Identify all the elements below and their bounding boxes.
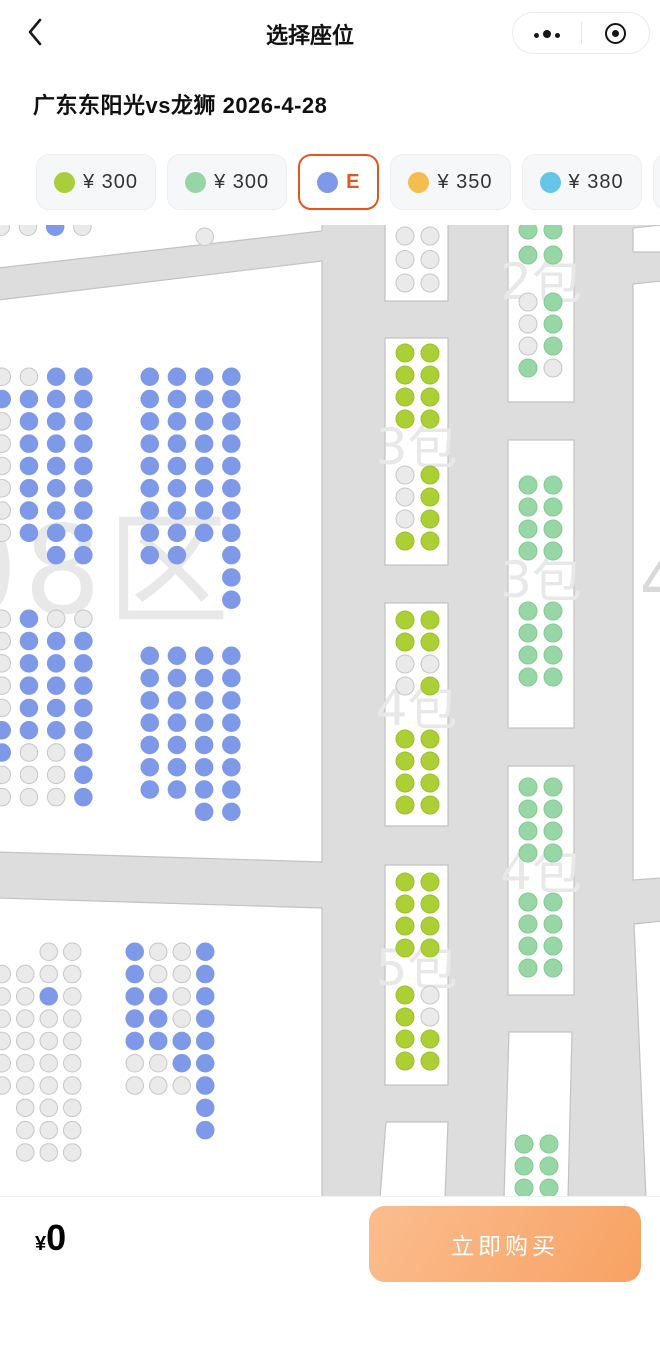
- seat-available[interactable]: [126, 988, 144, 1006]
- seat-available[interactable]: [519, 893, 537, 911]
- seat-available[interactable]: [197, 943, 215, 961]
- seat-available[interactable]: [519, 225, 537, 239]
- seat-available[interactable]: [540, 1135, 558, 1153]
- seat-available[interactable]: [47, 722, 65, 740]
- seat-available[interactable]: [544, 337, 562, 355]
- seat-unavailable: [20, 744, 38, 762]
- seat-available[interactable]: [519, 844, 537, 862]
- seat-available[interactable]: [141, 435, 159, 453]
- seat-available[interactable]: [396, 730, 414, 748]
- seat-available[interactable]: [519, 915, 537, 933]
- seat-available[interactable]: [75, 413, 93, 431]
- event-title: 广东东阳光vs龙狮 2026-4-28: [33, 88, 327, 120]
- seat-available[interactable]: [544, 476, 562, 494]
- seat-unavailable: [421, 227, 439, 245]
- seat-available[interactable]: [223, 803, 241, 821]
- seat-unavailable: [396, 251, 414, 269]
- seat-unavailable: [75, 610, 93, 628]
- seat-available[interactable]: [396, 388, 414, 406]
- seat-available[interactable]: [75, 480, 93, 498]
- seat-available[interactable]: [223, 669, 241, 687]
- seat-available[interactable]: [47, 502, 65, 520]
- seat-available[interactable]: [168, 457, 186, 475]
- seat-unavailable: [40, 1121, 58, 1139]
- seat-available[interactable]: [47, 546, 65, 564]
- seat-available[interactable]: [223, 480, 241, 498]
- seat-available[interactable]: [519, 822, 537, 840]
- seat-available[interactable]: [197, 1077, 215, 1095]
- seat-available[interactable]: [195, 714, 213, 732]
- seat-unavailable: [64, 965, 82, 983]
- seat-available[interactable]: [195, 390, 213, 408]
- seat-available[interactable]: [168, 524, 186, 542]
- seat-available[interactable]: [75, 788, 93, 806]
- seat-available[interactable]: [20, 610, 38, 628]
- seat-unavailable: [519, 337, 537, 355]
- seat-available[interactable]: [544, 542, 562, 560]
- seat-available[interactable]: [75, 632, 93, 650]
- seat-map[interactable]: 08区43包4包5包2包3包4包: [0, 225, 660, 1196]
- tier-dot-icon: [54, 172, 75, 193]
- seat-available[interactable]: [515, 1157, 533, 1175]
- seat-available[interactable]: [519, 800, 537, 818]
- seat-available[interactable]: [421, 633, 439, 651]
- seat-available[interactable]: [544, 844, 562, 862]
- seat-available[interactable]: [421, 752, 439, 770]
- tier-chip-5[interactable]: [653, 154, 660, 210]
- tier-chip-4[interactable]: ¥ 380: [522, 154, 642, 210]
- seat-available[interactable]: [197, 965, 215, 983]
- seat-available[interactable]: [396, 774, 414, 792]
- section-watermark: 4: [640, 545, 660, 619]
- seat-available[interactable]: [519, 520, 537, 538]
- seat-available[interactable]: [75, 435, 93, 453]
- seat-available[interactable]: [141, 390, 159, 408]
- seat-available[interactable]: [141, 546, 159, 564]
- seat-available[interactable]: [173, 1032, 191, 1050]
- seat-available[interactable]: [168, 413, 186, 431]
- section-watermark: 4包: [500, 843, 582, 901]
- seat-available[interactable]: [47, 677, 65, 695]
- seat-available[interactable]: [195, 413, 213, 431]
- seat-available[interactable]: [515, 1135, 533, 1153]
- seat-available[interactable]: [519, 542, 537, 560]
- seat-available[interactable]: [544, 624, 562, 642]
- seat-available[interactable]: [195, 524, 213, 542]
- navbar: 选择座位: [0, 0, 660, 64]
- seat-unavailable: [150, 965, 168, 983]
- seat-available[interactable]: [168, 546, 186, 564]
- seat-available[interactable]: [519, 359, 537, 377]
- miniprogram-capsule: [512, 12, 650, 54]
- seat-available[interactable]: [421, 388, 439, 406]
- seat-available[interactable]: [75, 457, 93, 475]
- seat-available[interactable]: [396, 1030, 414, 1048]
- seat-available[interactable]: [126, 1010, 144, 1028]
- seat-available[interactable]: [20, 722, 38, 740]
- seat-unavailable: [40, 1055, 58, 1073]
- seat-available[interactable]: [421, 366, 439, 384]
- tier-chip-label: ¥ 350: [437, 171, 492, 194]
- seat-available[interactable]: [223, 457, 241, 475]
- seat-available[interactable]: [223, 524, 241, 542]
- seat-available[interactable]: [195, 759, 213, 777]
- seat-available[interactable]: [195, 736, 213, 754]
- seat-available[interactable]: [519, 778, 537, 796]
- seat-available[interactable]: [544, 293, 562, 311]
- seat-available[interactable]: [20, 655, 38, 673]
- seat-available[interactable]: [396, 344, 414, 362]
- seat-available[interactable]: [75, 677, 93, 695]
- seat-available[interactable]: [141, 692, 159, 710]
- seat-unavailable: [421, 655, 439, 673]
- seat-unavailable: [64, 1032, 82, 1050]
- seat-available[interactable]: [47, 413, 65, 431]
- seat-available[interactable]: [421, 677, 439, 695]
- seat-unavailable: [40, 1032, 58, 1050]
- seat-available[interactable]: [126, 965, 144, 983]
- seat-available[interactable]: [168, 669, 186, 687]
- seat-available[interactable]: [47, 655, 65, 673]
- seat-available[interactable]: [40, 988, 58, 1006]
- seat-available[interactable]: [396, 917, 414, 935]
- seat-available[interactable]: [223, 435, 241, 453]
- seat-available[interactable]: [421, 939, 439, 957]
- seat-available[interactable]: [47, 368, 65, 386]
- map-section-right-edge-top: [633, 225, 660, 252]
- seat-available[interactable]: [47, 435, 65, 453]
- seat-available[interactable]: [141, 647, 159, 665]
- seat-available[interactable]: [141, 524, 159, 542]
- seat-available[interactable]: [421, 344, 439, 362]
- seat-available[interactable]: [421, 774, 439, 792]
- seat-available[interactable]: [195, 368, 213, 386]
- seat-available[interactable]: [421, 917, 439, 935]
- seat-available[interactable]: [421, 1052, 439, 1070]
- seat-available[interactable]: [421, 611, 439, 629]
- close-minimize-button[interactable]: [582, 13, 650, 53]
- seat-available[interactable]: [540, 1157, 558, 1175]
- seat-available[interactable]: [223, 591, 241, 609]
- seat-unavailable: [173, 965, 191, 983]
- seat-available[interactable]: [223, 714, 241, 732]
- seat-available[interactable]: [223, 413, 241, 431]
- seat-available[interactable]: [396, 1052, 414, 1070]
- seat-available[interactable]: [150, 1010, 168, 1028]
- seat-available[interactable]: [544, 246, 562, 264]
- seat-unavailable: [17, 1144, 35, 1162]
- seat-available[interactable]: [396, 1008, 414, 1026]
- seat-available[interactable]: [20, 435, 38, 453]
- seat-unavailable: [173, 943, 191, 961]
- seat-available[interactable]: [150, 988, 168, 1006]
- seat-unavailable: [64, 1144, 82, 1162]
- seat-available[interactable]: [519, 476, 537, 494]
- seat-available[interactable]: [20, 677, 38, 695]
- seat-available[interactable]: [75, 546, 93, 564]
- seat-unavailable: [47, 766, 65, 784]
- seat-available[interactable]: [197, 1010, 215, 1028]
- seat-unavailable: [20, 788, 38, 806]
- seat-unavailable: [40, 943, 58, 961]
- seat-available[interactable]: [519, 246, 537, 264]
- seat-available[interactable]: [544, 602, 562, 620]
- seat-available[interactable]: [519, 937, 537, 955]
- seat-unavailable: [17, 1032, 35, 1050]
- seat-unavailable: [17, 965, 35, 983]
- seat-available[interactable]: [195, 457, 213, 475]
- seat-available[interactable]: [75, 502, 93, 520]
- seat-available[interactable]: [195, 480, 213, 498]
- seat-available[interactable]: [168, 714, 186, 732]
- seat-unavailable: [126, 1055, 144, 1073]
- tier-dot-icon: [540, 172, 561, 193]
- seat-unavailable: [421, 251, 439, 269]
- seat-available[interactable]: [421, 510, 439, 528]
- seat-available[interactable]: [421, 730, 439, 748]
- seat-available[interactable]: [141, 502, 159, 520]
- seat-unavailable: [396, 655, 414, 673]
- seat-unavailable: [17, 1010, 35, 1028]
- seat-available[interactable]: [168, 390, 186, 408]
- seat-available[interactable]: [47, 524, 65, 542]
- seat-unavailable: [396, 488, 414, 506]
- seat-available[interactable]: [223, 647, 241, 665]
- section-watermark: 3包: [500, 551, 582, 609]
- seat-unavailable: [150, 943, 168, 961]
- tier-chip-1[interactable]: ¥ 300: [167, 154, 287, 210]
- seat-available[interactable]: [519, 959, 537, 977]
- seat-unavailable: [519, 315, 537, 333]
- seat-available[interactable]: [141, 781, 159, 799]
- seat-available[interactable]: [141, 413, 159, 431]
- seat-available[interactable]: [47, 632, 65, 650]
- seat-available[interactable]: [197, 1121, 215, 1139]
- seat-available[interactable]: [141, 480, 159, 498]
- seat-available[interactable]: [223, 781, 241, 799]
- seat-unavailable: [40, 1010, 58, 1028]
- seat-available[interactable]: [197, 988, 215, 1006]
- seat-available[interactable]: [544, 915, 562, 933]
- seat-available[interactable]: [20, 480, 38, 498]
- bottom-bar: ¥0 立即购买: [0, 1196, 660, 1349]
- seat-available[interactable]: [47, 390, 65, 408]
- seat-unavailable: [421, 986, 439, 1004]
- seat-available[interactable]: [396, 939, 414, 957]
- seat-available[interactable]: [20, 502, 38, 520]
- seat-available[interactable]: [150, 1032, 168, 1050]
- seat-available[interactable]: [126, 1032, 144, 1050]
- seat-available[interactable]: [421, 895, 439, 913]
- seat-available[interactable]: [195, 803, 213, 821]
- seat-unavailable: [64, 1055, 82, 1073]
- seat-available[interactable]: [20, 632, 38, 650]
- seat-available[interactable]: [396, 633, 414, 651]
- seat-available[interactable]: [544, 225, 562, 239]
- seat-available[interactable]: [168, 368, 186, 386]
- seat-available[interactable]: [75, 766, 93, 784]
- seat-unavailable: [40, 1144, 58, 1162]
- seat-unavailable: [20, 368, 38, 386]
- seat-available[interactable]: [195, 647, 213, 665]
- seat-available[interactable]: [519, 602, 537, 620]
- seat-available[interactable]: [168, 781, 186, 799]
- seat-available[interactable]: [141, 736, 159, 754]
- seat-available[interactable]: [20, 524, 38, 542]
- seat-available[interactable]: [421, 466, 439, 484]
- box-mid-bottom: [380, 1122, 448, 1196]
- seat-available[interactable]: [223, 546, 241, 564]
- seat-available[interactable]: [515, 1179, 533, 1196]
- tier-chip-2[interactable]: E: [298, 154, 379, 210]
- seat-available[interactable]: [47, 699, 65, 717]
- tier-chip-0[interactable]: ¥ 300: [36, 154, 156, 210]
- seat-available[interactable]: [173, 1055, 191, 1073]
- tier-chip-label: ¥ 380: [569, 171, 624, 194]
- seat-available[interactable]: [195, 781, 213, 799]
- seat-available[interactable]: [75, 744, 93, 762]
- seat-available[interactable]: [20, 457, 38, 475]
- seat-available[interactable]: [195, 692, 213, 710]
- section-watermark: 4包: [376, 679, 458, 737]
- seat-available[interactable]: [223, 390, 241, 408]
- seat-available[interactable]: [544, 668, 562, 686]
- seat-available[interactable]: [20, 413, 38, 431]
- more-menu-button[interactable]: [513, 13, 581, 53]
- seat-available[interactable]: [421, 532, 439, 550]
- seat-available[interactable]: [396, 986, 414, 1004]
- seat-available[interactable]: [421, 1030, 439, 1048]
- tier-chip-label: ¥ 300: [83, 171, 138, 194]
- seat-available[interactable]: [168, 692, 186, 710]
- seat-available[interactable]: [126, 943, 144, 961]
- seat-available[interactable]: [47, 457, 65, 475]
- seat-unavailable: [126, 1077, 144, 1095]
- seat-available[interactable]: [75, 699, 93, 717]
- seat-available[interactable]: [519, 498, 537, 516]
- seat-available[interactable]: [544, 498, 562, 516]
- seat-available[interactable]: [168, 480, 186, 498]
- box-right-bottom: [504, 1032, 572, 1196]
- seat-available[interactable]: [168, 647, 186, 665]
- box-right-2bao: [508, 225, 574, 402]
- seat-available[interactable]: [396, 366, 414, 384]
- seat-available[interactable]: [75, 722, 93, 740]
- seat-unavailable: [47, 610, 65, 628]
- price-tier-filter: ¥ 300¥ 300E¥ 350¥ 380: [0, 151, 660, 213]
- seat-available[interactable]: [544, 822, 562, 840]
- seat-map-canvas: 08区43包4包5包2包3包4包: [0, 225, 660, 1196]
- seat-available[interactable]: [396, 611, 414, 629]
- seat-available[interactable]: [396, 873, 414, 891]
- seat-available[interactable]: [223, 736, 241, 754]
- seat-available[interactable]: [168, 736, 186, 754]
- seat-available[interactable]: [544, 315, 562, 333]
- seat-available[interactable]: [75, 368, 93, 386]
- seat-available[interactable]: [544, 959, 562, 977]
- seat-available[interactable]: [20, 699, 38, 717]
- seat-available[interactable]: [519, 646, 537, 664]
- seat-available[interactable]: [544, 937, 562, 955]
- seat-available[interactable]: [141, 368, 159, 386]
- seat-unavailable: [40, 1099, 58, 1117]
- tier-chip-3[interactable]: ¥ 350: [390, 154, 510, 210]
- seat-unavailable: [421, 274, 439, 292]
- seat-unavailable: [64, 1121, 82, 1139]
- seat-unavailable: [17, 1055, 35, 1073]
- seat-unavailable: [40, 965, 58, 983]
- seat-available[interactable]: [75, 390, 93, 408]
- seat-available[interactable]: [396, 895, 414, 913]
- seat-available[interactable]: [223, 692, 241, 710]
- seat-available[interactable]: [197, 1055, 215, 1073]
- seat-available[interactable]: [544, 520, 562, 538]
- seat-unavailable: [396, 677, 414, 695]
- seat-available[interactable]: [141, 457, 159, 475]
- seat-available[interactable]: [421, 410, 439, 428]
- seat-unavailable: [519, 293, 537, 311]
- seat-unavailable: [173, 1010, 191, 1028]
- seat-available[interactable]: [223, 569, 241, 587]
- seat-available[interactable]: [141, 669, 159, 687]
- seat-available[interactable]: [540, 1179, 558, 1196]
- seat-available[interactable]: [168, 435, 186, 453]
- seat-available[interactable]: [195, 435, 213, 453]
- seat-available[interactable]: [20, 390, 38, 408]
- section-watermark: 2包: [500, 253, 582, 311]
- seat-available[interactable]: [223, 368, 241, 386]
- seat-available[interactable]: [141, 714, 159, 732]
- page-title: 选择座位: [120, 18, 500, 50]
- seat-available[interactable]: [195, 502, 213, 520]
- seat-available[interactable]: [47, 480, 65, 498]
- seat-unavailable: [64, 1099, 82, 1117]
- seat-available[interactable]: [141, 759, 159, 777]
- seat-available[interactable]: [197, 1099, 215, 1117]
- seat-unavailable: [173, 988, 191, 1006]
- seat-available[interactable]: [223, 502, 241, 520]
- seat-unavailable: [20, 766, 38, 784]
- seat-available[interactable]: [197, 1032, 215, 1050]
- seat-available[interactable]: [519, 624, 537, 642]
- seat-available[interactable]: [396, 532, 414, 550]
- back-button[interactable]: [20, 14, 50, 50]
- seat-available[interactable]: [168, 502, 186, 520]
- seat-unavailable: [17, 1077, 35, 1095]
- seat-available[interactable]: [168, 759, 186, 777]
- seat-available[interactable]: [223, 759, 241, 777]
- seat-available[interactable]: [544, 778, 562, 796]
- seat-available[interactable]: [421, 873, 439, 891]
- seat-available[interactable]: [544, 800, 562, 818]
- seat-available[interactable]: [544, 646, 562, 664]
- seat-available[interactable]: [421, 796, 439, 814]
- tier-chip-label: ¥ 300: [214, 171, 269, 194]
- seat-available[interactable]: [544, 893, 562, 911]
- seat-available[interactable]: [421, 488, 439, 506]
- currency-symbol: ¥: [35, 1233, 46, 1255]
- seat-available[interactable]: [75, 524, 93, 542]
- buy-now-button[interactable]: 立即购买: [369, 1206, 641, 1282]
- seat-available[interactable]: [519, 668, 537, 686]
- seat-unavailable: [17, 1121, 35, 1139]
- seat-available[interactable]: [396, 796, 414, 814]
- seat-available[interactable]: [195, 669, 213, 687]
- seat-unavailable: [64, 1077, 82, 1095]
- seat-available[interactable]: [396, 410, 414, 428]
- seat-available[interactable]: [396, 752, 414, 770]
- seat-available[interactable]: [75, 655, 93, 673]
